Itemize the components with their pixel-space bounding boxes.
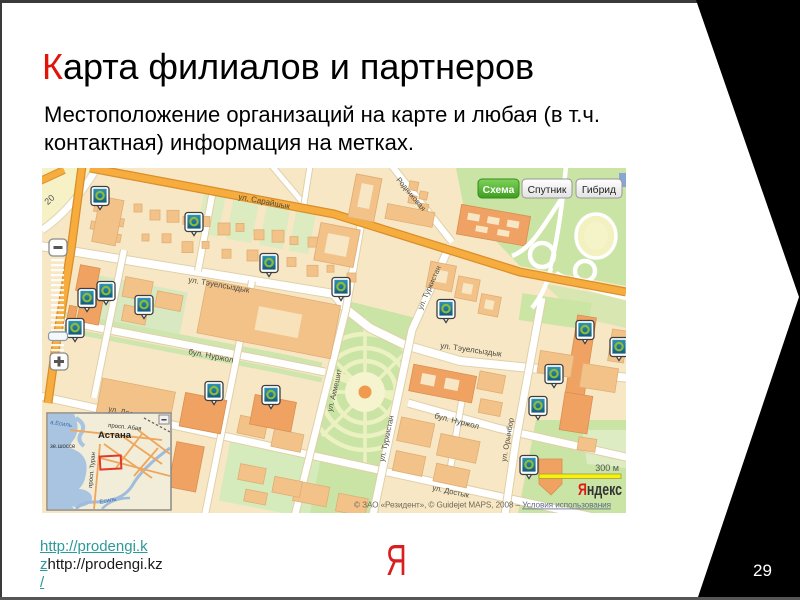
svg-text:29: 29 bbox=[753, 561, 772, 580]
